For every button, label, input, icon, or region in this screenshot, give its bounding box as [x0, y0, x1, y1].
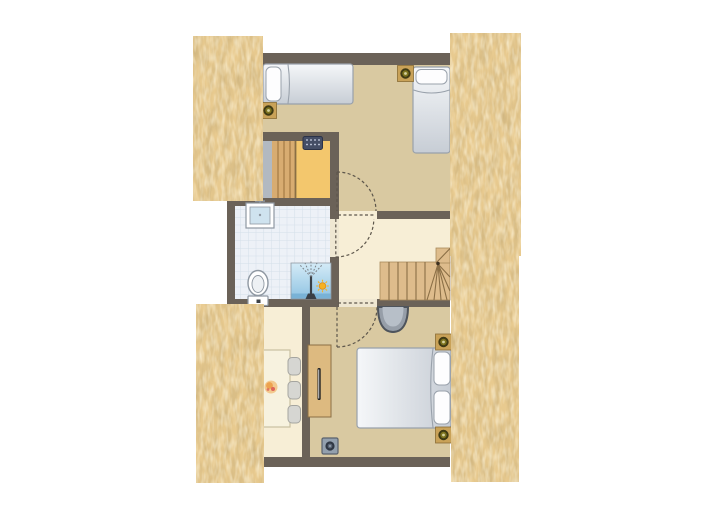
sun-core — [319, 283, 326, 290]
dining-chair-2 — [288, 382, 301, 400]
sauna-ledge — [262, 140, 272, 198]
single-bed-vertical — [413, 67, 450, 153]
thatched-roof-bottom-right — [451, 249, 519, 482]
floor-socket-dot — [329, 445, 331, 447]
flower-petal-1 — [271, 387, 275, 391]
wall-top — [255, 53, 450, 65]
double-bed-pillow-1 — [434, 352, 450, 385]
toilet — [248, 271, 268, 306]
stairs-newel — [436, 262, 440, 266]
desk-dresser — [308, 345, 331, 417]
sauna-heater-body — [303, 137, 323, 150]
toilet-bowl-inner — [252, 276, 264, 293]
toilet-flush-button — [257, 300, 261, 304]
flower-decoration — [265, 381, 278, 394]
wall-sauna-top — [255, 132, 339, 141]
bathroom-door-threshold — [330, 219, 339, 257]
sauna-heater-icon — [303, 137, 323, 150]
sun-symbol — [316, 280, 329, 293]
wall-bedroom-landing — [377, 211, 450, 219]
flower-petal-2 — [267, 388, 270, 391]
thatched-roof-top-right — [450, 33, 521, 256]
thatched-roof-top-left — [193, 36, 263, 201]
ceiling-spotlight-icon-4 — [436, 427, 452, 443]
sink — [246, 201, 274, 228]
dining-chair-3 — [288, 406, 301, 424]
single-bed-horizontal-pillow — [266, 67, 281, 101]
wall-bathroom-left — [227, 198, 235, 307]
double-bed-pillow-2 — [434, 391, 450, 424]
shower — [291, 262, 331, 300]
floor-plan-page — [0, 0, 713, 519]
sauna-bench — [272, 140, 296, 198]
dining-table — [262, 350, 290, 427]
ceiling-spotlight-icon-3 — [436, 334, 452, 350]
floor-socket-icon — [322, 438, 338, 454]
single-bed-horizontal — [263, 64, 353, 104]
ceiling-spotlight-icon-2 — [398, 66, 414, 82]
double-bed — [357, 348, 451, 428]
desk-handle-highlight — [318, 370, 319, 399]
floor-plan-canvas — [0, 0, 713, 519]
single-bed-vertical-pillow — [416, 70, 447, 85]
thatched-roof-bottom-left — [196, 304, 264, 483]
dining-chair-1 — [288, 358, 301, 376]
sink-drain — [259, 214, 261, 216]
wall-bottom — [255, 457, 450, 467]
